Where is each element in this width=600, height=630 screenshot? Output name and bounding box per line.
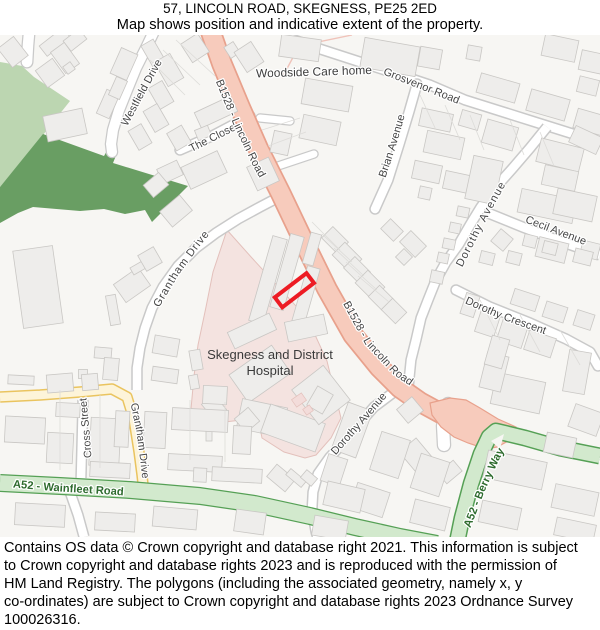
svg-text:Skegness and District: Skegness and District <box>207 347 333 362</box>
svg-text:Hospital: Hospital <box>247 363 294 378</box>
